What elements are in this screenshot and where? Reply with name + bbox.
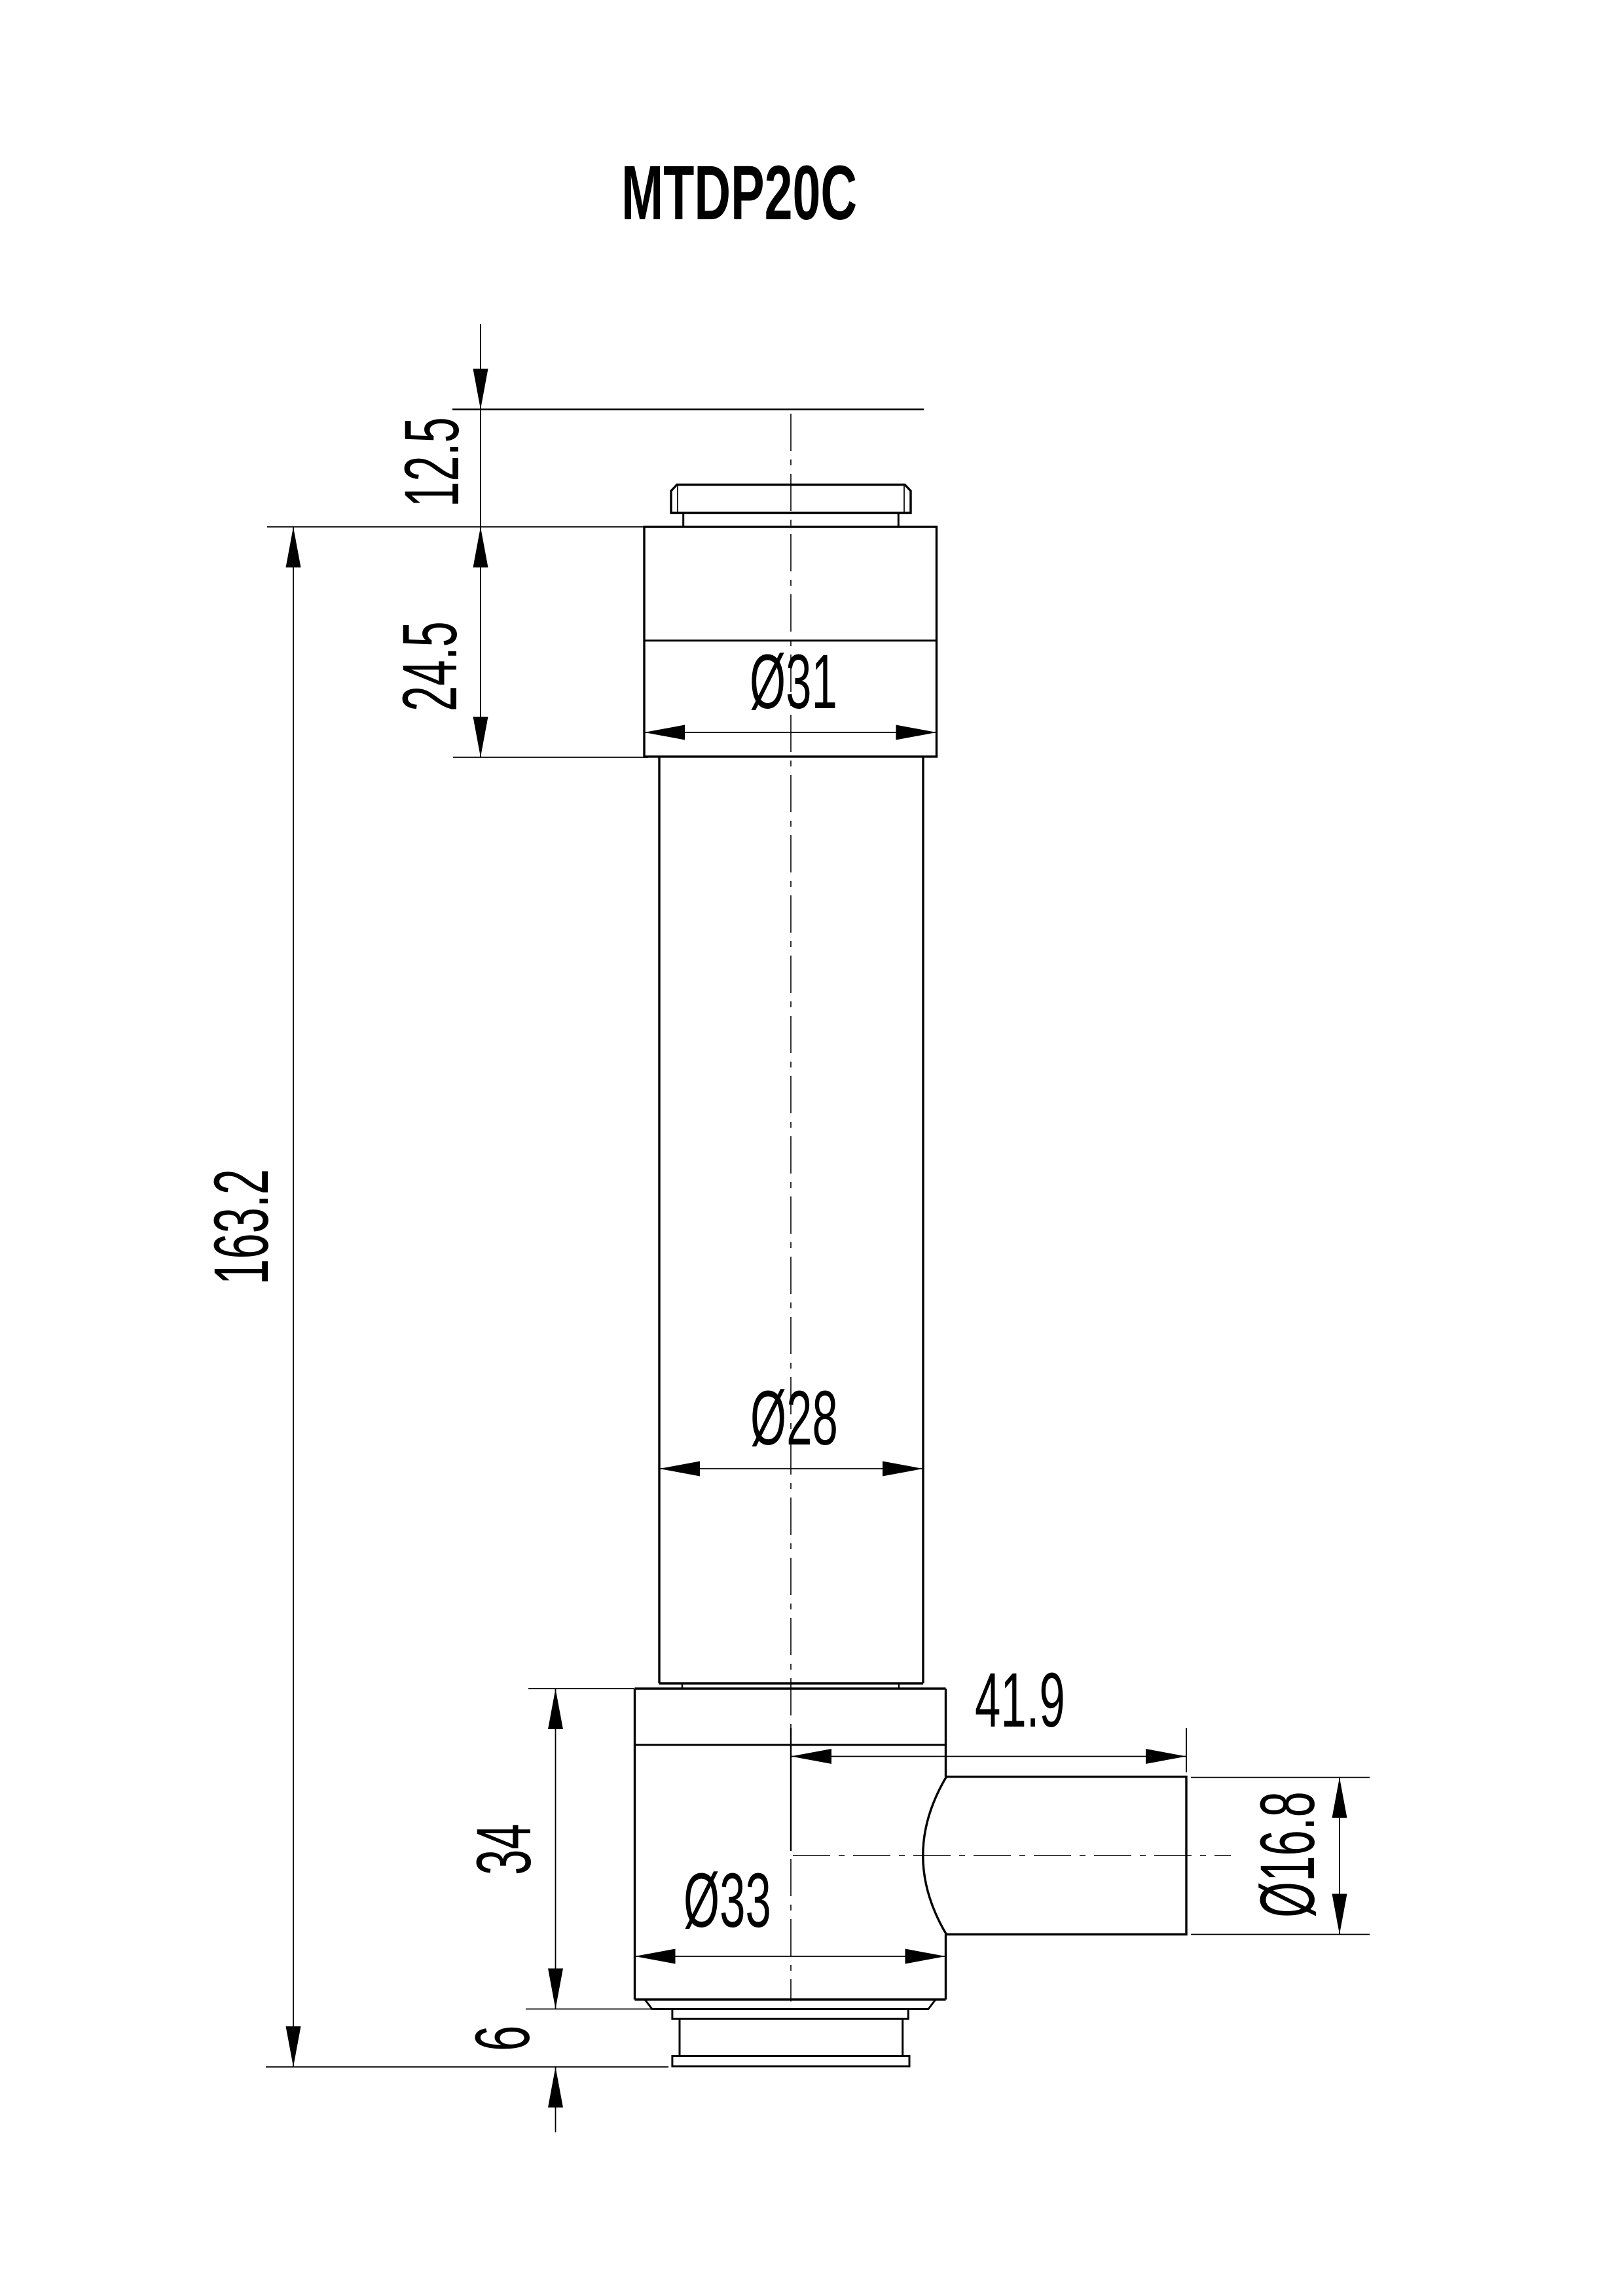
svg-text:Ø33: Ø33 xyxy=(684,1857,771,1943)
svg-text:34: 34 xyxy=(460,1823,547,1875)
svg-text:163.2: 163.2 xyxy=(198,1169,284,1285)
svg-text:Ø28: Ø28 xyxy=(750,1374,838,1461)
svg-text:12.5: 12.5 xyxy=(388,417,475,507)
svg-text:Ø31: Ø31 xyxy=(750,638,837,725)
svg-text:6: 6 xyxy=(459,2026,545,2051)
svg-text:Ø16.8: Ø16.8 xyxy=(1244,1791,1330,1918)
svg-text:41.9: 41.9 xyxy=(975,1657,1065,1743)
svg-text:MTDP20C: MTDP20C xyxy=(621,151,857,236)
svg-text:24.5: 24.5 xyxy=(386,621,473,711)
